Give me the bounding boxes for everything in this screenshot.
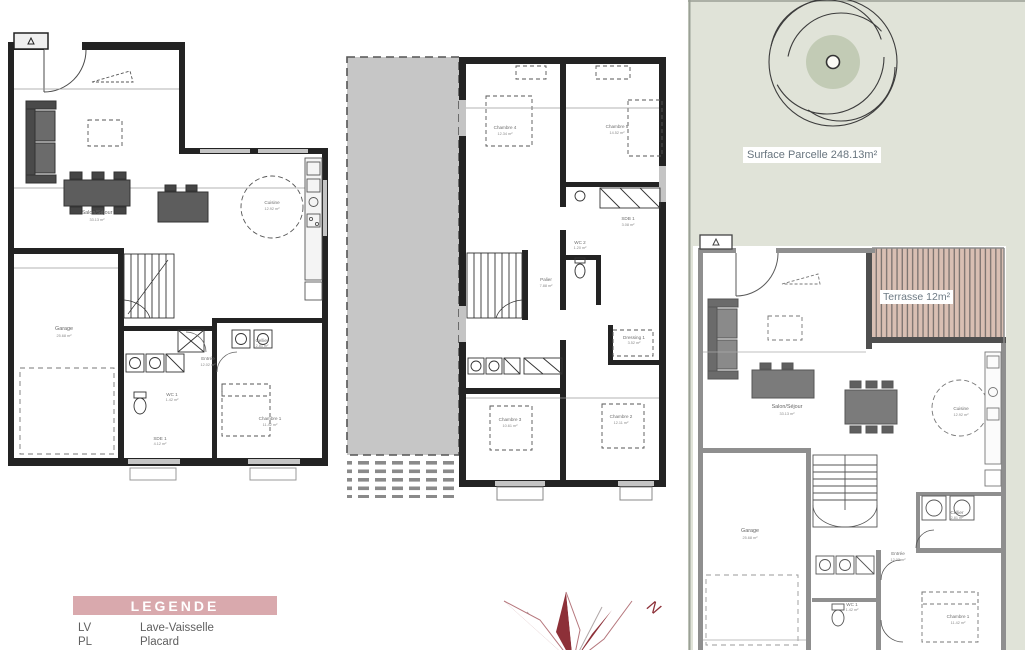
room-area: 10.61 m²: [503, 424, 519, 428]
room-label: Cellier: [950, 510, 963, 515]
terrasse-label: Terrasse 12m²: [880, 290, 953, 304]
island-icon: [158, 185, 208, 222]
room-label: Palier: [540, 277, 552, 282]
stairs-icon: [124, 254, 174, 318]
room-area: 1.42 m²: [846, 608, 860, 612]
plan-site-ground-floor: [693, 235, 1006, 650]
legend-items: LV Lave-Vaisselle PL Placard: [60, 621, 214, 649]
legend-row: PL Placard: [60, 635, 214, 649]
room-label: Garage: [55, 326, 73, 332]
plan-ground-floor: [8, 33, 328, 480]
room-area: 1.20 m²: [574, 246, 588, 250]
room-area: 12.02 m²: [201, 363, 217, 367]
room-label: Dressing 1: [623, 335, 645, 340]
legend-title: LEGENDE: [131, 598, 220, 614]
surface-parcelle-label: Surface Parcelle 248.13m²: [743, 147, 881, 163]
room-label: Chambre 5: [606, 124, 629, 129]
room-label: WC 1: [166, 392, 178, 397]
compass-north-label: N: [644, 598, 664, 619]
kitchen-counter-icon: [305, 158, 322, 300]
room-area: 25.68 m²: [57, 334, 73, 338]
room-label: Cuisine: [953, 406, 969, 411]
room-label: SDE 1: [153, 436, 167, 441]
room-area: 25.68 m²: [743, 536, 759, 540]
compass-rose: N: [504, 592, 663, 650]
coffee-table-icon: [88, 120, 122, 146]
legend-abbr: PL: [60, 635, 140, 649]
furniture-dashed: [486, 96, 662, 450]
room-label: WC 2: [574, 240, 586, 245]
room-label: Salon/Séjour: [772, 404, 803, 410]
legend-label: Placard: [140, 635, 214, 649]
room-area: 1.42 m²: [166, 398, 180, 402]
legend: LEGENDE LV Lave-Vaisselle PL Placard: [60, 596, 320, 649]
dimension-lines: [14, 89, 322, 268]
meter-box-icon: [700, 235, 732, 249]
room-area: 11.42 m²: [263, 423, 278, 427]
room-area: 12.11 m²: [614, 421, 629, 425]
floorplan-drawing: Salon/Séjour 33.13 m² Cuisine 12.92 m² G…: [0, 0, 1025, 650]
room-label: SDB 1: [621, 216, 635, 221]
garage-parking-icon: [20, 368, 114, 454]
sofa-icon: [26, 101, 56, 183]
room-area: 2.81 m²: [256, 344, 270, 348]
floorplan-sheet: Salon/Séjour 33.13 m² Cuisine 12.92 m² G…: [0, 0, 1025, 650]
room-label: Chambre 1: [259, 416, 282, 421]
room-label: Cellier: [255, 338, 268, 343]
room-area: 12.92 m²: [954, 413, 970, 417]
velux-icons: [516, 66, 630, 79]
room-label: Entrée: [201, 356, 215, 361]
room-area: 12.02 m²: [891, 558, 907, 562]
pergola-hatch: [347, 458, 459, 498]
room-area: 12.92 m²: [265, 207, 281, 211]
room-area: 3.52 m²: [628, 341, 642, 345]
room-area: 11.42 m²: [951, 621, 966, 625]
entry-door-icon: [44, 50, 86, 92]
stairs-icon: [467, 253, 522, 318]
room-label: WC 1: [846, 602, 858, 607]
room-area: 4.12 m²: [154, 442, 168, 446]
legend-row: LV Lave-Vaisselle: [60, 621, 214, 635]
room-label: Chambre 4: [494, 125, 517, 130]
room-label: Garage: [741, 528, 759, 534]
legend-title-bar: LEGENDE: [73, 596, 277, 615]
room-area: 33.13 m²: [90, 218, 106, 222]
dining-table-icon: [64, 172, 130, 214]
legend-label: Lave-Vaisselle: [140, 621, 214, 635]
room-area: 2.81 m²: [951, 516, 965, 520]
meter-box-icon: [14, 33, 48, 49]
room-label: Chambre 3: [499, 417, 522, 422]
room-label: Chambre 1: [947, 614, 970, 619]
room-label: Salon/Séjour: [82, 210, 113, 216]
bathroom-fixtures: [126, 330, 237, 414]
legend-abbr: LV: [60, 621, 140, 635]
room-area: 7.88 m²: [540, 284, 554, 288]
room-area: 14.52 m²: [610, 131, 626, 135]
adjacent-roof-area: [347, 57, 459, 455]
room-area: 33.13 m²: [780, 412, 796, 416]
room-label: Entrée: [891, 551, 905, 556]
bed-icon: [222, 384, 270, 436]
room-label: Chambre 2: [610, 414, 633, 419]
room-area: 3.08 m²: [622, 223, 636, 227]
room-area: 12.34 m²: [498, 132, 514, 136]
room-label: Cuisine: [264, 200, 280, 205]
